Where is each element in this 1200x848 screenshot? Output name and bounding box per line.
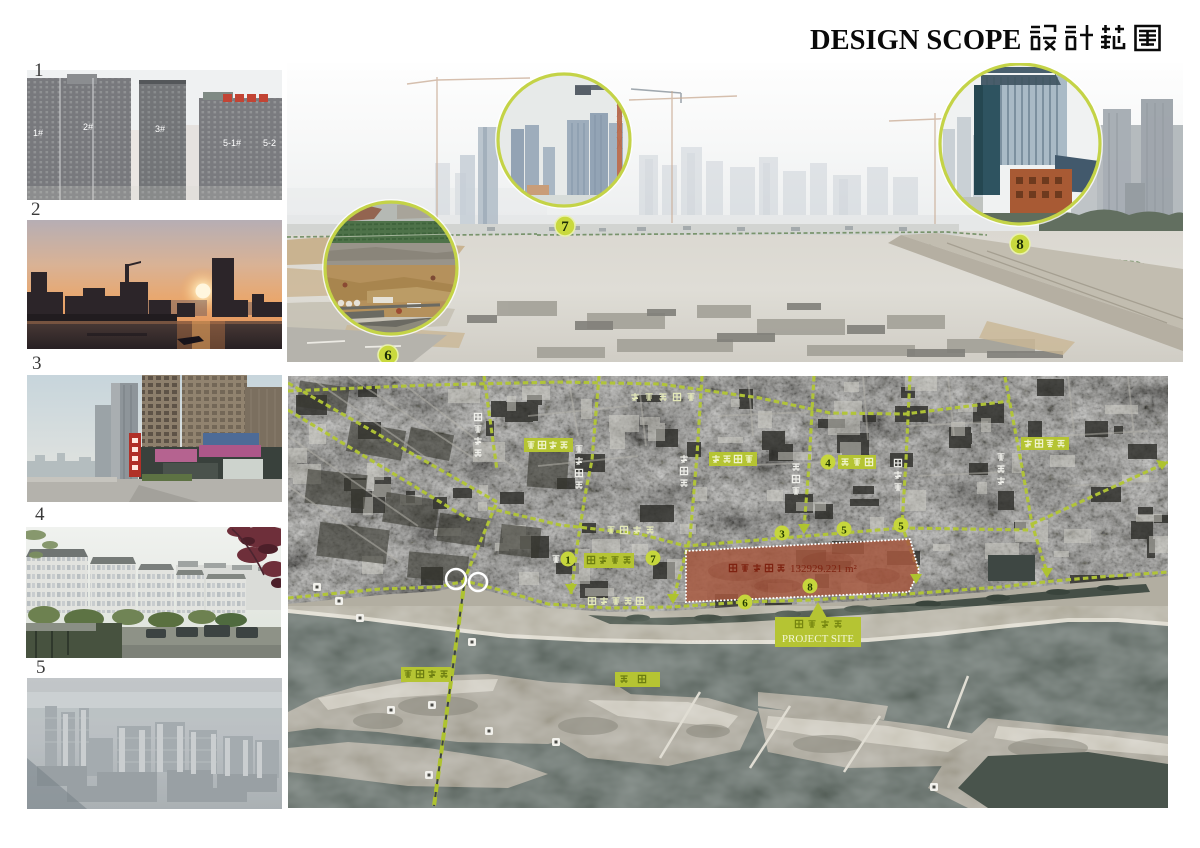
svg-text:8: 8 xyxy=(807,582,813,594)
svg-text:8: 8 xyxy=(1016,237,1024,253)
svg-text:1: 1 xyxy=(565,555,571,567)
svg-text:2#: 2# xyxy=(83,122,93,132)
svg-text:PROJECT SITE: PROJECT SITE xyxy=(782,633,855,645)
svg-text:132929.221 m²: 132929.221 m² xyxy=(790,563,858,575)
svg-text:4: 4 xyxy=(825,458,831,470)
svg-text:6: 6 xyxy=(742,598,748,610)
svg-text:5-2: 5-2 xyxy=(263,138,276,148)
svg-text:7: 7 xyxy=(561,219,569,235)
svg-text:7: 7 xyxy=(650,554,656,566)
svg-text:5: 5 xyxy=(841,525,847,537)
svg-text:1#: 1# xyxy=(33,128,43,138)
svg-text:3#: 3# xyxy=(155,124,165,134)
svg-text:5: 5 xyxy=(898,521,904,533)
svg-text:3: 3 xyxy=(779,529,785,541)
svg-text:5-1#: 5-1# xyxy=(223,138,241,148)
svg-text:DESIGN SCOPE: DESIGN SCOPE xyxy=(810,25,1021,56)
svg-text:6: 6 xyxy=(384,348,392,362)
